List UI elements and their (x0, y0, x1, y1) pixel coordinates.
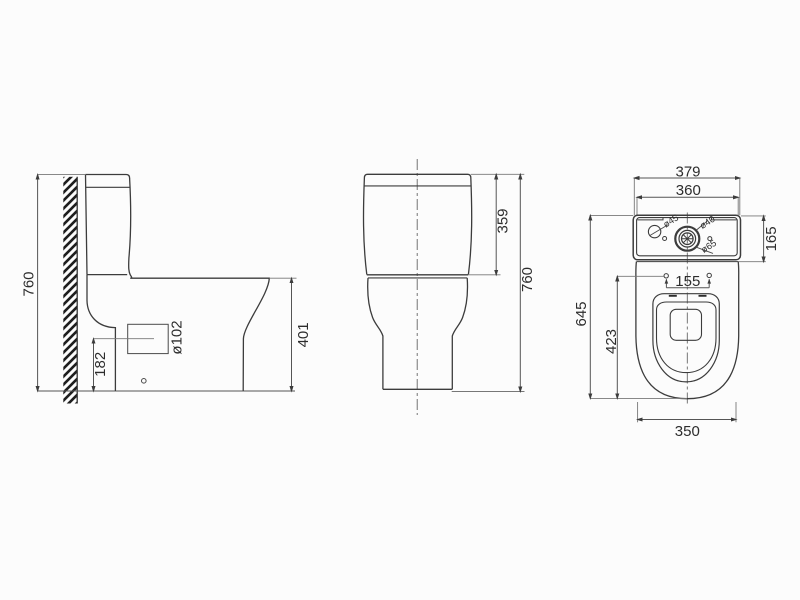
svg-text:359: 359 (495, 208, 512, 233)
svg-text:155: 155 (675, 273, 700, 290)
svg-text:760: 760 (20, 271, 37, 296)
svg-text:165: 165 (763, 226, 780, 251)
svg-text:401: 401 (295, 322, 312, 347)
svg-text:423: 423 (603, 329, 620, 354)
svg-text:350: 350 (675, 423, 700, 440)
svg-text:182: 182 (92, 352, 109, 377)
svg-text:645: 645 (573, 301, 590, 326)
svg-text:760: 760 (519, 267, 536, 292)
svg-text:360: 360 (676, 182, 701, 199)
svg-text:ø102: ø102 (169, 320, 186, 354)
